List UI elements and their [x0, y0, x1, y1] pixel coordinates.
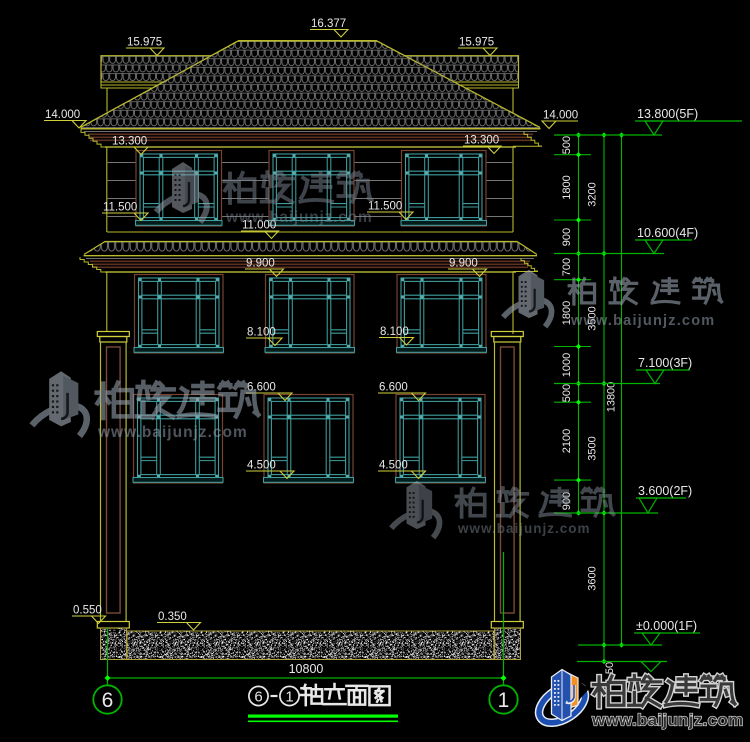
svg-text:www.baijunjz.com: www.baijunjz.com	[457, 521, 591, 536]
svg-text:6: 6	[102, 689, 114, 712]
svg-text:15.975: 15.975	[459, 37, 494, 49]
svg-text:50: 50	[604, 662, 616, 674]
svg-text:1: 1	[498, 689, 510, 712]
svg-text:13800: 13800	[606, 382, 618, 413]
svg-text:3500: 3500	[587, 436, 599, 460]
svg-text:13.300: 13.300	[112, 136, 147, 148]
svg-text:1: 1	[285, 689, 293, 706]
svg-text:7.100(3F): 7.100(3F)	[638, 356, 692, 370]
svg-text:1800: 1800	[561, 175, 573, 199]
svg-text:15.975: 15.975	[127, 37, 162, 49]
svg-text:13.300: 13.300	[464, 135, 499, 147]
svg-text:900: 900	[561, 228, 573, 246]
svg-text:500: 500	[561, 384, 573, 402]
svg-text:9.900: 9.900	[449, 258, 478, 270]
svg-text:4.500: 4.500	[247, 460, 276, 472]
svg-text:0.550: 0.550	[73, 605, 102, 617]
svg-text:6.600: 6.600	[379, 382, 408, 394]
svg-text:3200: 3200	[587, 182, 599, 206]
svg-text:10800: 10800	[289, 662, 324, 676]
svg-text:9.900: 9.900	[246, 258, 275, 270]
svg-text:10.600(4F): 10.600(4F)	[637, 226, 698, 240]
svg-text:±0.000(1F): ±0.000(1F)	[636, 619, 697, 633]
svg-text:11.500: 11.500	[103, 202, 137, 214]
svg-text:0.350: 0.350	[158, 611, 187, 623]
svg-text:2100: 2100	[561, 429, 573, 453]
svg-text:1000: 1000	[561, 353, 573, 377]
svg-text:8.100: 8.100	[380, 326, 409, 338]
svg-text:500: 500	[561, 136, 573, 154]
svg-text:13.800(5F): 13.800(5F)	[637, 107, 698, 121]
svg-text:www.baijunjz.com: www.baijunjz.com	[591, 711, 744, 730]
svg-text:4.500: 4.500	[379, 460, 408, 472]
svg-text:11.500: 11.500	[368, 201, 402, 213]
svg-text:14.000: 14.000	[45, 109, 80, 121]
svg-text:700: 700	[561, 258, 573, 276]
svg-text:3.600(2F): 3.600(2F)	[638, 484, 692, 498]
svg-text:www.baijunjz.com: www.baijunjz.com	[225, 209, 373, 226]
svg-text:16.377: 16.377	[311, 18, 346, 30]
svg-text:14.000: 14.000	[543, 110, 578, 122]
svg-text:6: 6	[254, 689, 262, 706]
svg-text:8.100: 8.100	[247, 327, 276, 339]
svg-text:3600: 3600	[587, 566, 599, 590]
svg-text:www.baijunjz.com: www.baijunjz.com	[570, 313, 715, 329]
svg-text:www.baijunjz.com: www.baijunjz.com	[97, 424, 248, 441]
